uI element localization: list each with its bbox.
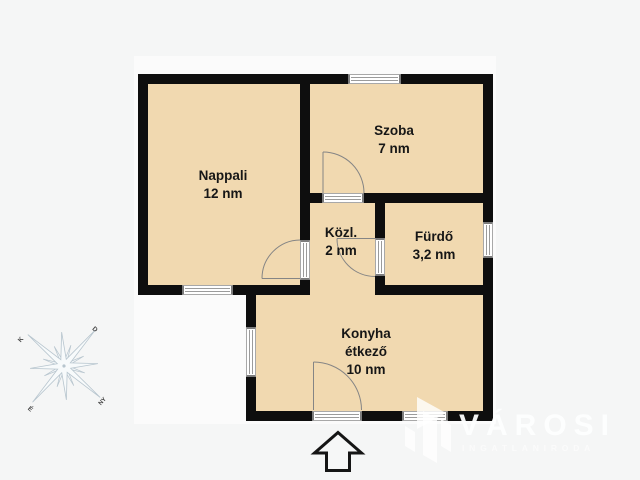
watermark-brand: VÁROSI [459,409,616,443]
room-area: 10 nm [341,361,391,379]
window-nappali-bottom [182,285,233,295]
room-name: Szoba [374,122,414,140]
window-szoba-top [348,74,401,84]
label-szoba: Szoba 7 nm [374,122,414,158]
room-name: Közl. [325,224,357,242]
wall-top [138,74,493,84]
wall-bottom [246,411,493,421]
room-area: 7 nm [374,140,414,158]
compass-label-d: D [91,326,99,335]
floorplan-page: K D É NY Nappali 12 nm Szoba 7 nm Közl. … [0,0,640,480]
room-area: 3,2 nm [413,246,456,264]
label-kozl: Közl. 2 nm [325,224,357,260]
door-jamb [303,243,307,277]
window-glass [351,77,398,81]
label-furdo: Fürdő 3,2 nm [413,228,456,264]
compass-minor-star [42,344,85,387]
door-jamb [378,241,382,273]
room-name: Nappali [199,167,248,185]
room-name2: étkező [341,343,391,361]
window-glass [405,414,445,418]
room-name: Konyha [341,325,391,343]
window-konyha-bottom [402,411,448,421]
label-konyha: Konyha étkező 10 nm [341,325,391,379]
window-glass [249,330,253,374]
compass-main-star [28,330,101,403]
door-opening-entry [312,411,362,421]
room-name: Fürdő [413,228,456,246]
compass-rose: K D É NY [16,325,108,414]
door-opening-nappali [300,240,310,280]
wall-left [138,74,148,295]
compass-center [62,364,65,367]
room-area: 2 nm [325,242,357,260]
room-area: 12 nm [199,185,248,203]
door-opening-szoba [322,193,364,203]
door-jamb [315,414,359,418]
door-opening-furdo [375,238,385,276]
watermark-tagline: INGATLANIRODA [462,443,595,453]
window-glass [185,288,230,292]
window-konyha-left [246,327,256,377]
entrance-arrow [315,433,362,471]
compass-label-ny: NY [98,397,108,407]
compass-label-k: K [17,336,26,344]
window-glass [486,225,490,255]
window-furdo-right [483,222,493,258]
label-nappali: Nappali 12 nm [199,167,248,203]
compass-label-e: É [26,404,36,414]
door-jamb [325,196,361,200]
wall-furdo-bottom [375,285,493,295]
